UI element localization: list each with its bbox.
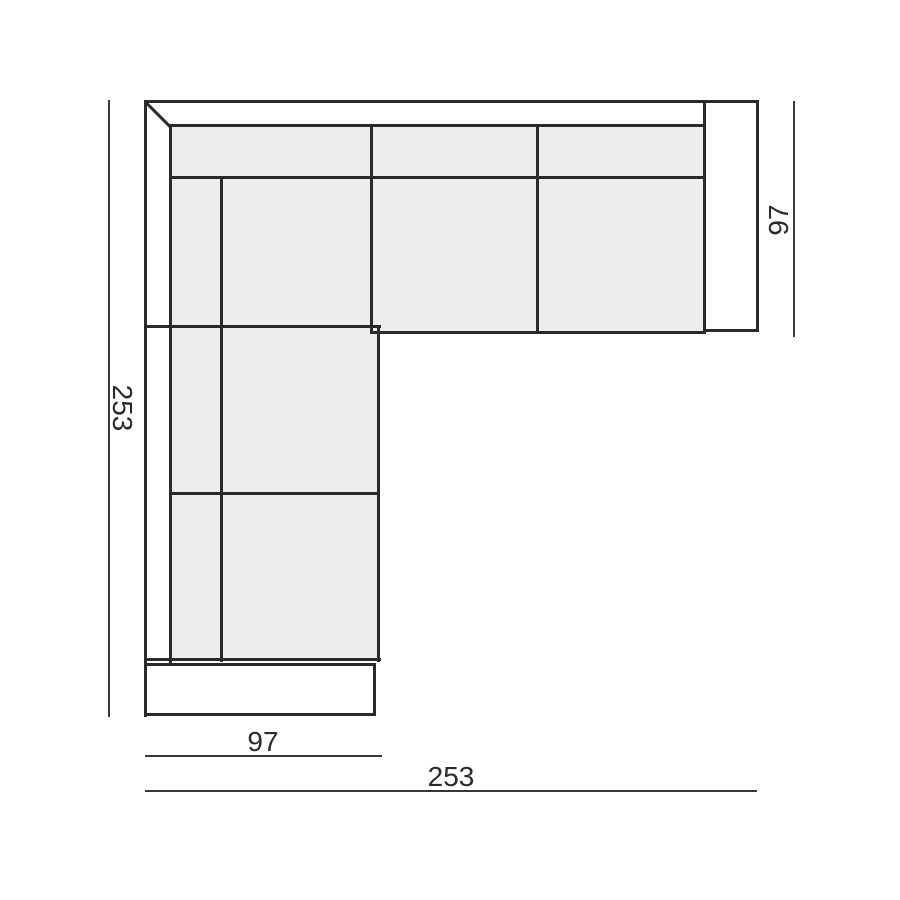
- right-armrest-outer-edge: [756, 100, 759, 332]
- seat-area-fill: [170, 178, 706, 333]
- front-rail-top-edge: [144, 663, 376, 666]
- sofa-dimension-diagram: 253 97 97 253: [0, 0, 900, 900]
- sofa-outer-left-edge: [144, 100, 147, 717]
- right-armrest-bottom-edge: [703, 329, 759, 332]
- corner-seat-right-divider: [370, 176, 373, 334]
- back-cushion-divider-1: [370, 124, 373, 179]
- back-cushion-strip-fill: [170, 127, 706, 178]
- dimension-label-bottom-total: 253: [428, 763, 475, 791]
- chaise-right-edge: [377, 326, 380, 662]
- back-rail-inner-left-edge: [169, 124, 172, 664]
- back-corner-diagonal: [145, 101, 172, 128]
- dimension-label-bottom-width: 97: [247, 728, 278, 756]
- back-cushion-divider-2: [536, 124, 539, 179]
- seat-cushion-divider: [536, 176, 539, 334]
- left-strip-divider: [220, 176, 223, 662]
- dimension-label-right-depth: 97: [765, 204, 793, 235]
- front-rail-right-edge: [373, 663, 376, 716]
- back-rail-inner-top-edge: [169, 124, 706, 127]
- sofa-outer-top-edge: [144, 100, 759, 103]
- chaise-cushion-divider: [169, 492, 380, 495]
- back-cushion-front-edge: [169, 176, 706, 179]
- front-rail-bottom-edge: [144, 713, 376, 716]
- corner-seat-bottom-divider: [144, 325, 381, 328]
- right-armrest-inner-edge: [703, 100, 706, 332]
- dimension-label-left-height: 253: [108, 385, 136, 432]
- chaise-cushion-front-edge: [144, 658, 381, 661]
